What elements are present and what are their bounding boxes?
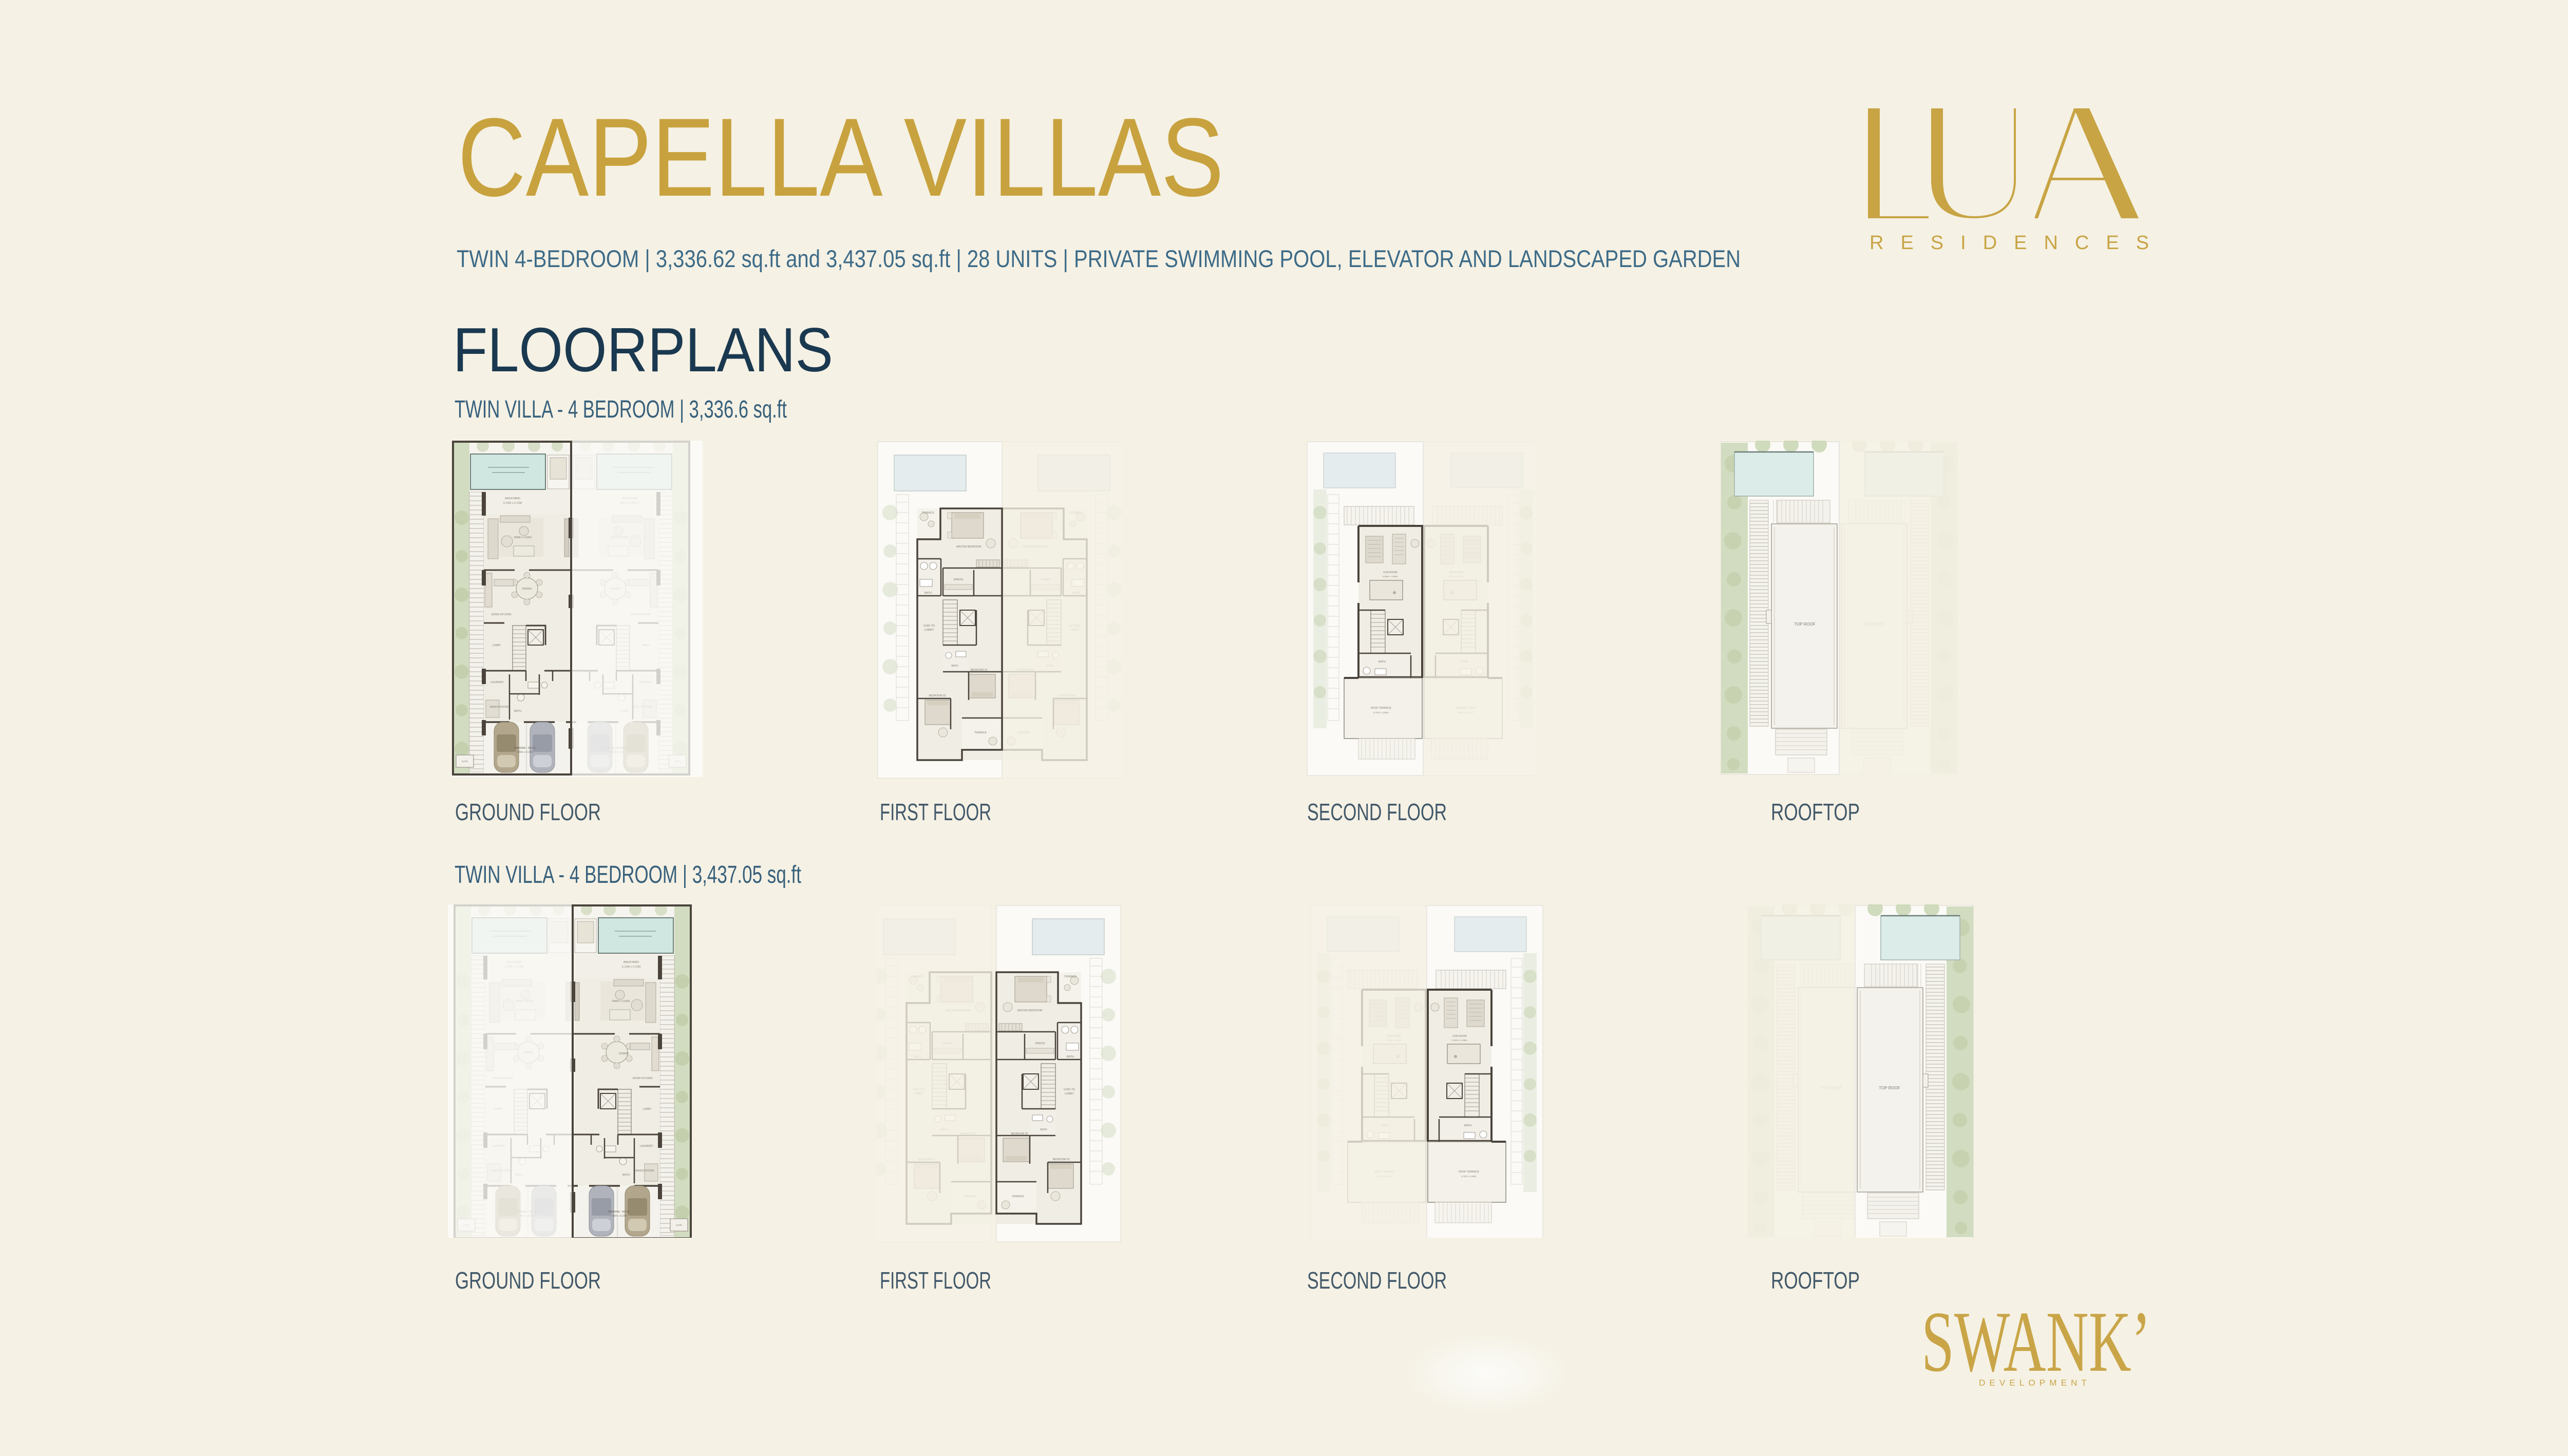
svg-text:MAIDS ROOM: MAIDS ROOM <box>635 1169 654 1173</box>
svg-text:ROOFTOP: ROOFTOP <box>1771 799 1860 825</box>
svg-text:MASTER BEDROOM: MASTER BEDROOM <box>1017 1009 1042 1012</box>
svg-text:ROOF TERRACE: ROOF TERRACE <box>1459 1170 1479 1174</box>
svg-text:ROOFTOP: ROOFTOP <box>1771 1267 1860 1294</box>
svg-text:LOBBY: LOBBY <box>643 1108 652 1111</box>
svg-text:GROUND FLOOR: GROUND FLOOR <box>455 799 601 825</box>
svg-text:BATH: BATH <box>1464 1124 1471 1127</box>
svg-text:9.15M x 5.10M: 9.15M x 5.10M <box>622 966 641 969</box>
svg-text:BACKYARD: BACKYARD <box>624 961 639 964</box>
svg-text:FAMILY LIVING: FAMILY LIVING <box>612 1000 630 1003</box>
svg-text:SECOND FLOOR: SECOND FLOOR <box>1307 799 1447 825</box>
svg-text:LOBBY: LOBBY <box>1065 1092 1074 1095</box>
svg-text:6.40m x 5.28m: 6.40m x 5.28m <box>610 1215 627 1218</box>
svg-text:SWANK’: SWANK’ <box>1921 1293 2151 1390</box>
svg-text:BATH: BATH <box>622 1174 630 1177</box>
svg-text:GROUND FLOOR: GROUND FLOOR <box>455 1267 601 1294</box>
svg-text:CAPELLA VILLAS: CAPELLA VILLAS <box>458 95 1224 219</box>
svg-text:GATE: GATE <box>676 1224 682 1226</box>
svg-text:TWIN VILLA - 4 BEDROOM | 3,437: TWIN VILLA - 4 BEDROOM | 3,437.05 sq.ft <box>455 861 801 888</box>
svg-text:SECOND FLOOR: SECOND FLOOR <box>1307 1267 1447 1294</box>
svg-text:BATH: BATH <box>1041 1128 1047 1131</box>
svg-text:FUN ROOM: FUN ROOM <box>1452 1035 1466 1038</box>
svg-text:LAUNDRY: LAUNDRY <box>640 1145 654 1148</box>
svg-text:BEDROOM 03: BEDROOM 03 <box>1053 1158 1070 1161</box>
svg-text:TWIN 4-BEDROOM | 3,336.62 sq.f: TWIN 4-BEDROOM | 3,336.62 sq.ft and 3,43… <box>457 245 1741 272</box>
svg-text:PARKING - NO.01: PARKING - NO.01 <box>608 1211 629 1214</box>
svg-text:SHOW KITCHEN: SHOW KITCHEN <box>633 1077 653 1080</box>
svg-text:VOID TO: VOID TO <box>1064 1088 1075 1091</box>
svg-text:FLOORPLANS: FLOORPLANS <box>453 315 833 385</box>
svg-text:BEDROOM 02: BEDROOM 02 <box>1011 1132 1028 1136</box>
svg-text:RESIDENCES: RESIDENCES <box>1870 232 2166 254</box>
svg-text:TERRACE: TERRACE <box>1012 1195 1025 1198</box>
svg-text:DEVELOPMENT: DEVELOPMENT <box>1979 1378 2091 1388</box>
svg-text:5.08m x 4.08m: 5.08m x 4.08m <box>1452 1039 1467 1042</box>
svg-text:FIRST FLOOR: FIRST FLOOR <box>880 1267 991 1294</box>
svg-text:TWIN VILLA - 4 BEDROOM | 3,336: TWIN VILLA - 4 BEDROOM | 3,336.6 sq.ft <box>455 396 787 423</box>
svg-text:TOP ROOF: TOP ROOF <box>1879 1086 1900 1090</box>
svg-text:TERRACE: TERRACE <box>1064 975 1077 978</box>
svg-text:BATH: BATH <box>1067 1055 1074 1058</box>
svg-text:DRESS: DRESS <box>1035 1042 1045 1045</box>
svg-text:FIRST FLOOR: FIRST FLOOR <box>880 799 991 825</box>
svg-text:DINING: DINING <box>619 1052 629 1055</box>
svg-text:5.70m x 4.80m: 5.70m x 4.80m <box>1461 1175 1477 1178</box>
